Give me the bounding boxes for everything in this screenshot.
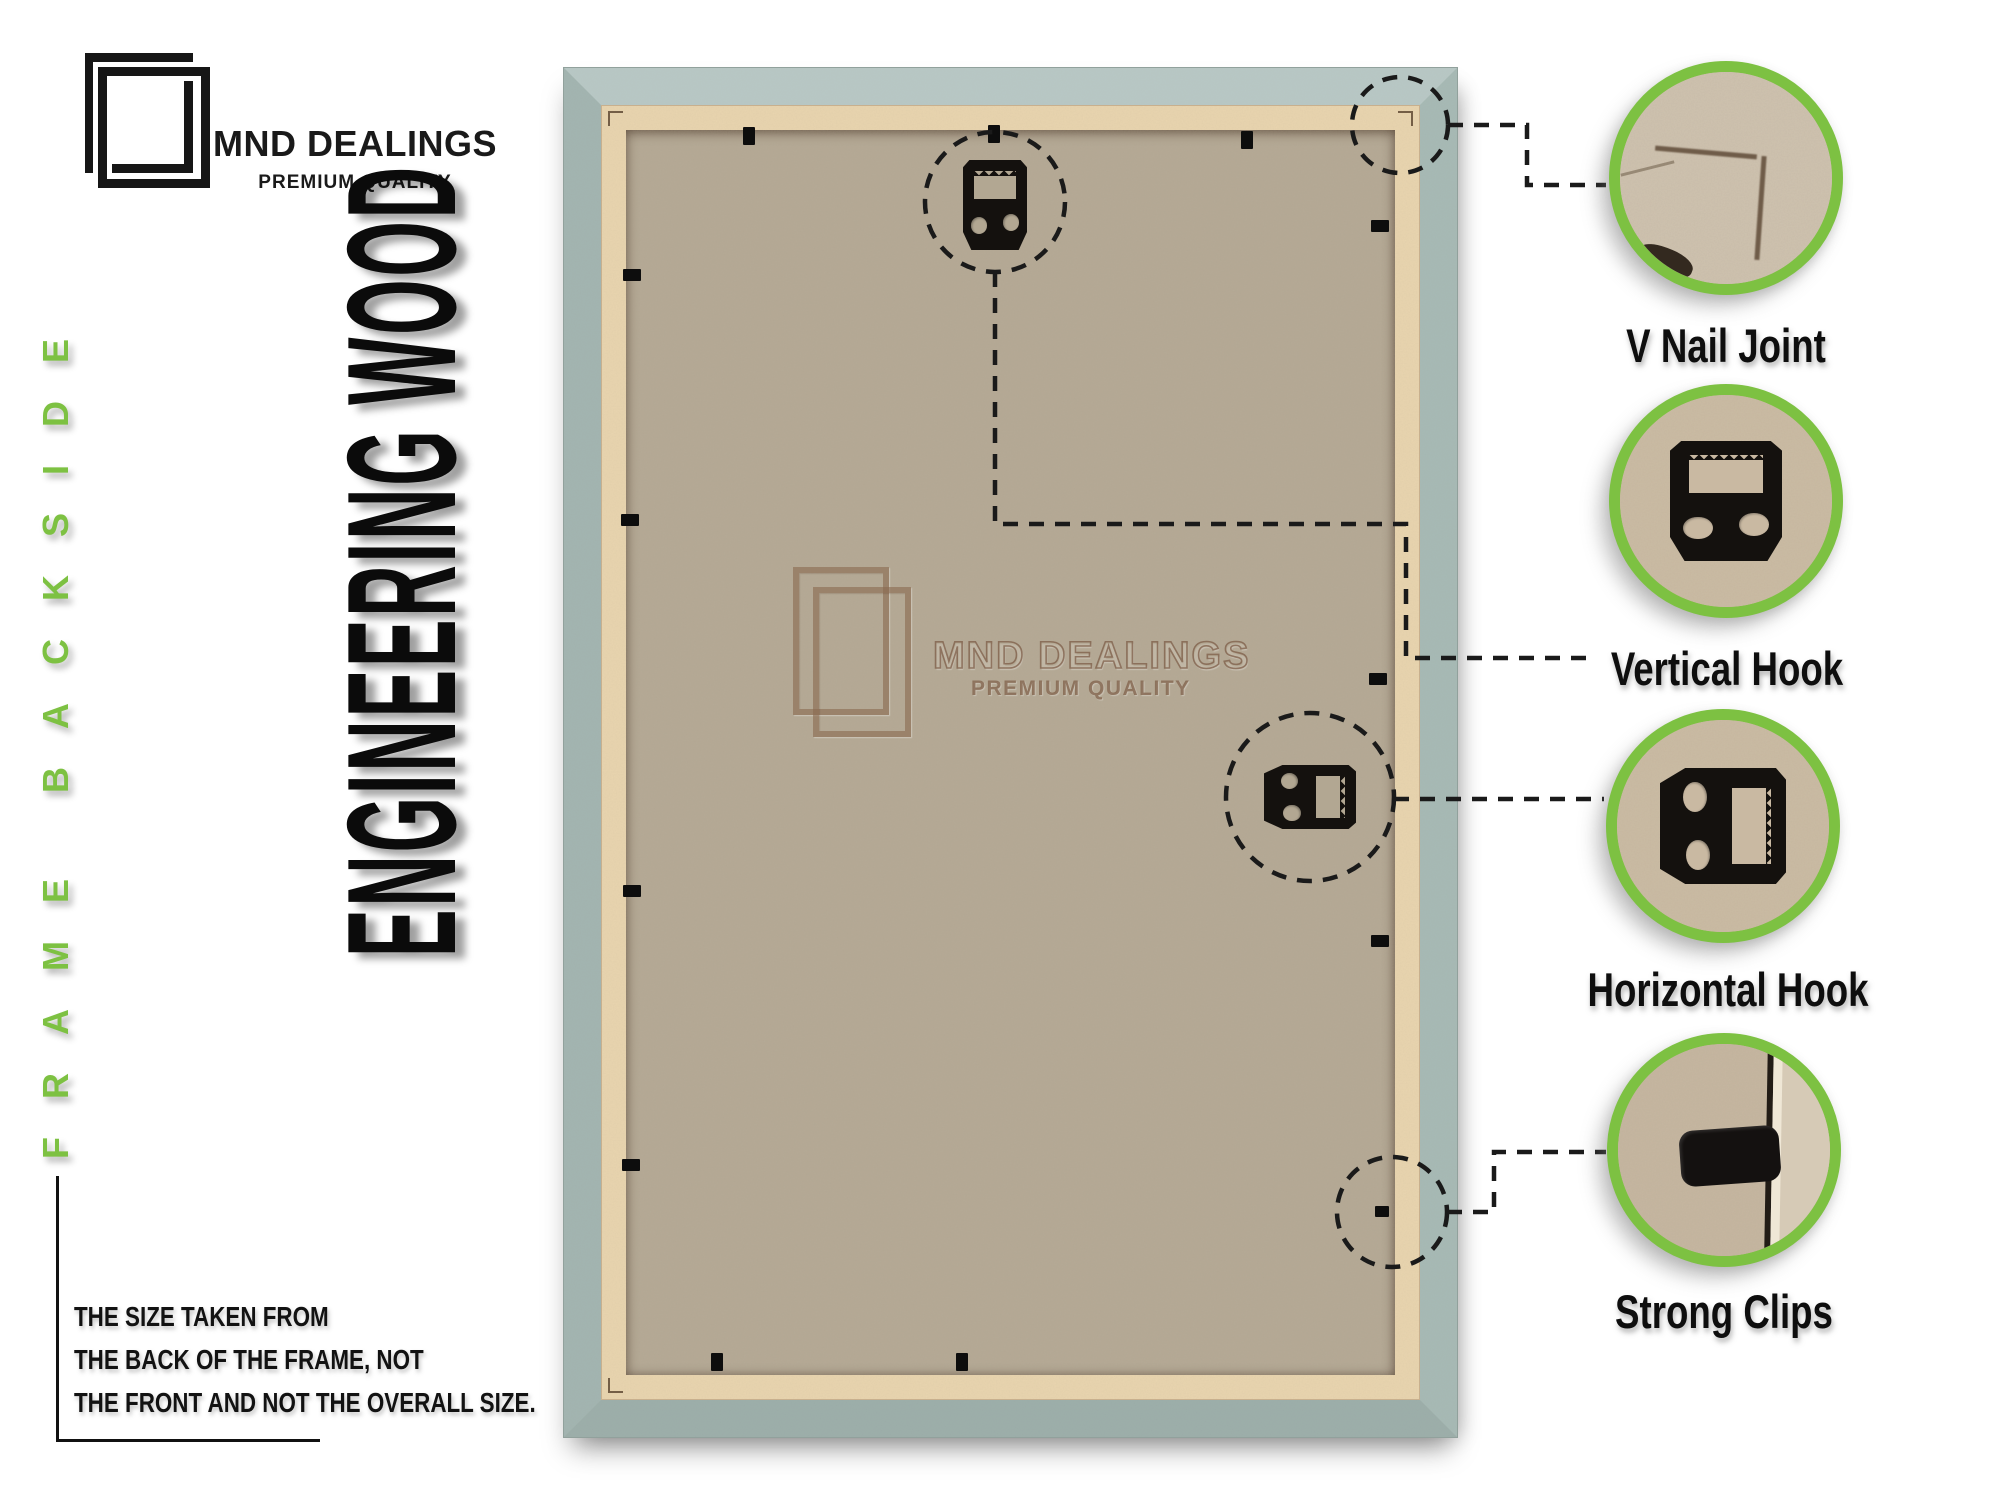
callout-circle-strong-clips [1607,1033,1841,1267]
retaining-clip [1375,1206,1389,1217]
hook-screw-hole [1683,782,1707,812]
callout-label-vertical-hook: Vertical Hook [1571,641,1883,696]
moulding-shade-top [564,68,1457,106]
retaining-clip [956,1353,968,1371]
horizontal-hook-icon [1660,768,1786,884]
retaining-clip [623,269,641,281]
v-nail-groove-vertical [1754,156,1766,260]
moulding-shade-left [564,68,602,1437]
horizontal-hook-photo [1617,720,1829,932]
horizontal-hook-hardware [1264,765,1356,829]
wood-crack [1620,160,1674,176]
picture-frame-back: MND DEALINGS PREMIUM QUALITY [563,67,1458,1438]
retaining-clip [623,885,641,897]
retaining-clip [621,514,639,526]
vertical-hook-photo [1620,395,1832,607]
product-infographic: MND DEALINGS PREMIUM QUALITY FRAME BACKS… [0,0,2000,1500]
hook-teeth [1689,454,1763,460]
hook-slot [974,171,1016,199]
hook-screw-hole [1686,840,1710,870]
hook-screw-hole [1739,513,1768,536]
hook-screw-hole [1683,517,1712,540]
retaining-clip [1241,131,1253,149]
size-note-line-1: THE SIZE TAKEN FROM [74,1295,536,1338]
retaining-clip [1369,673,1387,685]
retaining-clip [711,1353,723,1371]
hook-screw-hole [1281,773,1298,790]
size-note-line-2: THE BACK OF THE FRAME, NOT [74,1338,536,1381]
board-edge-right [1778,1044,1830,1256]
vertical-hook-icon [1670,441,1782,561]
note-bracket-vertical [56,1176,59,1442]
hook-teeth [974,170,1016,176]
hook-body [1264,765,1356,829]
hook-screw-hole [1003,214,1020,231]
watermark-tagline: PREMIUM QUALITY [971,677,1191,701]
watermark-brand-name: MND DEALINGS [933,635,1250,678]
retaining-clip [988,125,1000,143]
hook-body [1660,768,1786,884]
retaining-clip [622,1159,640,1171]
v-nail-groove-horizontal [1655,146,1757,160]
strong-clip-icon [1678,1125,1782,1188]
connector-v-nail-joint [1448,125,1606,185]
hook-teeth [1766,788,1772,865]
hook-slot [1732,788,1771,865]
callout-circle-v-nail-joint [1609,61,1843,295]
moulding-shade-bottom [564,1399,1457,1437]
corner-shadow [1633,238,1697,284]
engineering-wood-vertical-label: ENGINEERING WOOD [322,221,482,957]
brand-name: MND DEALINGS [190,123,520,165]
retaining-clip [1371,935,1389,947]
vertical-hook-hardware [963,160,1027,250]
hook-slot [1689,455,1763,492]
v-nail-mark-bottom-left [608,1378,623,1393]
note-bracket-horizontal [56,1439,320,1442]
hook-slot [1316,776,1345,818]
hook-body [1670,441,1782,561]
watermark-logo-rect-front [813,587,911,737]
moulding-shade-right [1419,68,1457,1437]
hook-screw-hole [1283,805,1300,822]
size-note-line-3: THE FRONT AND NOT THE OVERALL SIZE. [74,1381,536,1424]
v-nail-joint-photo [1620,72,1832,284]
v-nail-mark-top-right [1398,111,1413,126]
retaining-clip [743,127,755,145]
callout-label-v-nail-joint: V Nail Joint [1570,318,1882,373]
callout-circle-vertical-hook [1609,384,1843,618]
strong-clips-photo [1618,1044,1830,1256]
retaining-clip [1371,220,1389,232]
callout-circle-horizontal-hook [1606,709,1840,943]
callout-label-strong-clips: Strong Clips [1568,1284,1880,1339]
size-note: THE SIZE TAKEN FROM THE BACK OF THE FRAM… [74,1295,536,1424]
hook-screw-hole [971,217,988,234]
v-nail-mark-top-left [608,111,623,126]
embossed-watermark: MND DEALINGS PREMIUM QUALITY [793,561,1233,821]
callout-label-horizontal-hook: Horizontal Hook [1572,962,1884,1017]
connector-strong-clips [1447,1152,1606,1212]
frame-backside-vertical-label: FRAME BACKSIDE [33,230,79,1230]
hook-body [963,160,1027,250]
hook-teeth [1340,776,1346,818]
